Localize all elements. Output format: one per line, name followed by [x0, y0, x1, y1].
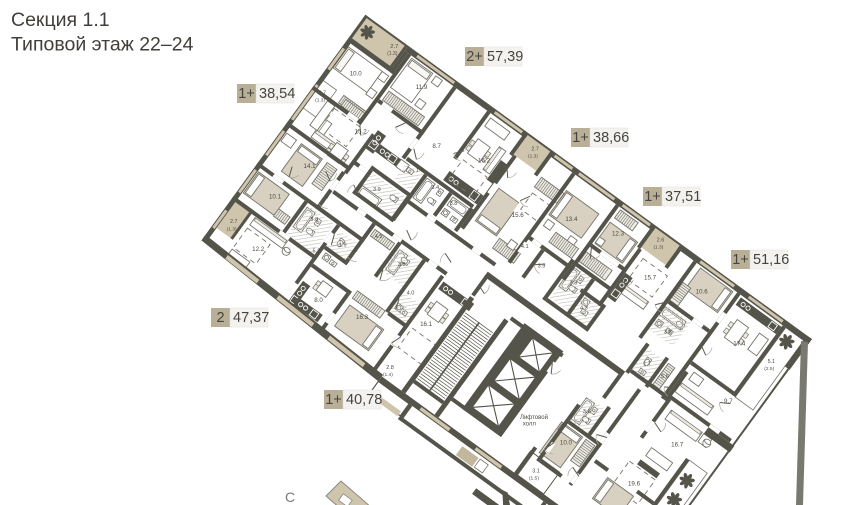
- svg-text:1.9: 1.9: [339, 243, 347, 249]
- svg-text:3.8: 3.8: [310, 217, 318, 223]
- svg-text:15.7: 15.7: [644, 275, 657, 282]
- svg-text:57,39: 57,39: [487, 49, 523, 65]
- svg-text:(1.3): (1.3): [227, 226, 237, 232]
- svg-text:(1.3): (1.3): [653, 245, 663, 251]
- svg-text:3.8: 3.8: [664, 329, 672, 335]
- svg-text:холл: холл: [523, 421, 537, 427]
- svg-text:2.7: 2.7: [531, 146, 539, 152]
- svg-text:11.9: 11.9: [416, 84, 428, 91]
- svg-text:1.8: 1.8: [416, 167, 424, 173]
- svg-text:12.2: 12.2: [252, 246, 265, 253]
- svg-text:8.7: 8.7: [432, 143, 441, 150]
- svg-text:1.7: 1.7: [643, 361, 651, 367]
- svg-text:(1.3): (1.3): [315, 98, 325, 104]
- svg-text:(1.4): (1.4): [383, 372, 393, 378]
- svg-text:3.8: 3.8: [398, 262, 406, 268]
- svg-text:Секция 1.1: Секция 1.1: [11, 9, 110, 31]
- svg-text:17.4: 17.4: [733, 341, 746, 348]
- svg-text:9.7: 9.7: [724, 398, 733, 405]
- svg-text:2.7: 2.7: [390, 44, 398, 50]
- svg-text:(2.5): (2.5): [764, 366, 774, 372]
- svg-text:4.0: 4.0: [407, 291, 415, 297]
- svg-text:4.3: 4.3: [580, 305, 588, 311]
- svg-text:47,37: 47,37: [233, 310, 269, 326]
- svg-text:Типовой этаж 22–24: Типовой этаж 22–24: [11, 34, 194, 56]
- svg-text:3.6: 3.6: [583, 409, 591, 415]
- svg-text:8.0: 8.0: [314, 297, 323, 304]
- svg-text:3.9: 3.9: [373, 187, 381, 193]
- svg-text:1+: 1+: [732, 252, 749, 268]
- svg-text:19.6: 19.6: [628, 480, 641, 487]
- svg-text:16.7: 16.7: [671, 441, 684, 448]
- svg-text:10.0: 10.0: [350, 71, 363, 78]
- svg-text:40,78: 40,78: [346, 392, 382, 408]
- svg-text:15.6: 15.6: [512, 212, 525, 219]
- svg-text:1+: 1+: [644, 189, 661, 205]
- svg-text:2.6: 2.6: [657, 237, 665, 243]
- svg-text:2.7: 2.7: [230, 219, 238, 225]
- svg-text:1+: 1+: [325, 392, 342, 408]
- svg-text:14.1: 14.1: [304, 163, 317, 170]
- svg-text:3.8: 3.8: [570, 281, 578, 287]
- svg-text:5.1: 5.1: [768, 359, 776, 365]
- svg-text:37,51: 37,51: [665, 189, 701, 205]
- svg-text:38,66: 38,66: [593, 130, 629, 146]
- svg-text:(1.3): (1.3): [528, 153, 538, 159]
- svg-text:(1.5): (1.5): [529, 475, 539, 481]
- svg-text:(1.3): (1.3): [387, 51, 398, 57]
- svg-text:2: 2: [216, 310, 224, 326]
- svg-text:10.1: 10.1: [269, 194, 282, 201]
- svg-text:3.8: 3.8: [450, 201, 458, 207]
- svg-text:10.6: 10.6: [696, 289, 709, 296]
- svg-text:2.8: 2.8: [386, 365, 394, 371]
- svg-text:4.5: 4.5: [375, 234, 383, 240]
- svg-text:12.3: 12.3: [612, 230, 625, 237]
- svg-text:С: С: [285, 489, 295, 505]
- svg-text:1+: 1+: [238, 86, 255, 102]
- svg-text:4.1: 4.1: [521, 244, 529, 250]
- svg-text:2+: 2+: [466, 49, 483, 65]
- svg-text:3.4: 3.4: [431, 185, 439, 191]
- svg-text:5.6: 5.6: [661, 374, 669, 380]
- svg-text:15.2: 15.2: [355, 129, 368, 136]
- svg-text:10.0: 10.0: [560, 440, 573, 447]
- svg-text:3.1: 3.1: [532, 468, 540, 474]
- svg-text:2.7: 2.7: [318, 91, 326, 97]
- svg-text:51,16: 51,16: [753, 252, 789, 268]
- svg-text:16.1: 16.1: [420, 321, 433, 328]
- svg-text:16.3: 16.3: [356, 314, 369, 321]
- svg-text:Лифтовой: Лифтовой: [520, 414, 548, 421]
- svg-text:3.9: 3.9: [538, 263, 546, 269]
- svg-text:38,54: 38,54: [259, 86, 295, 102]
- svg-text:13.4: 13.4: [565, 216, 578, 223]
- svg-text:5.2: 5.2: [313, 248, 321, 254]
- svg-text:16.2: 16.2: [478, 158, 491, 165]
- svg-text:1+: 1+: [572, 130, 589, 146]
